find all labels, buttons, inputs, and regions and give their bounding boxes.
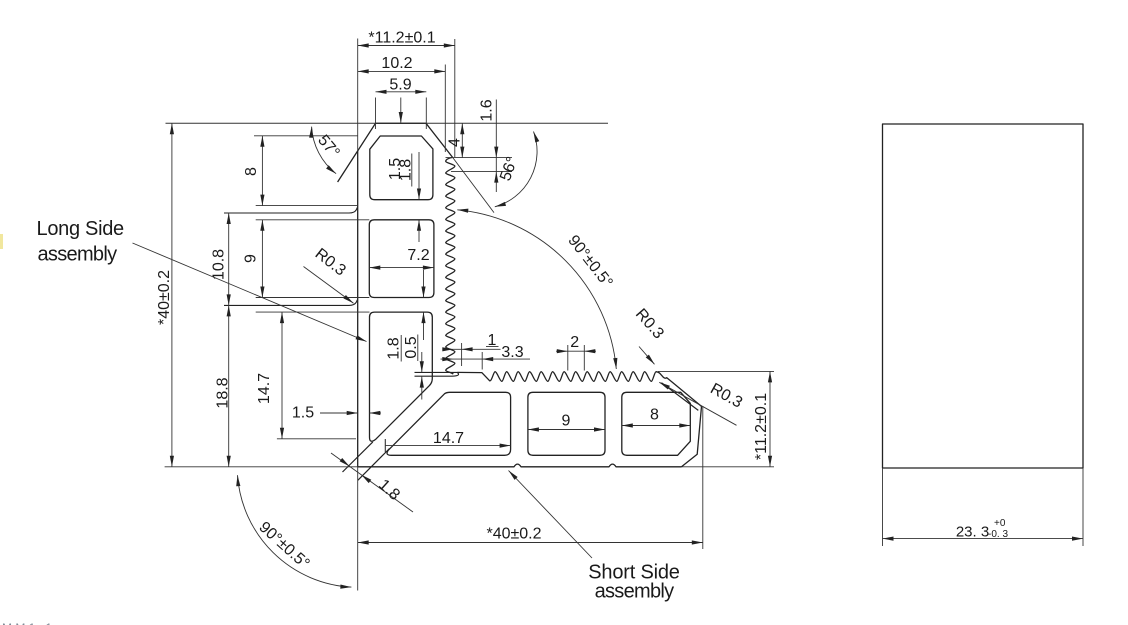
svg-text:M M 1 : 1: M M 1 : 1	[2, 621, 52, 625]
svg-text:18.8: 18.8	[214, 377, 231, 408]
svg-text:assembly: assembly	[595, 581, 675, 603]
svg-text:3.3: 3.3	[501, 344, 523, 361]
svg-text:0.5: 0.5	[403, 336, 420, 358]
svg-text:1.5: 1.5	[292, 405, 314, 422]
svg-text:4: 4	[446, 138, 463, 147]
svg-text:+0: +0	[994, 518, 1006, 529]
svg-text:-0. 3: -0. 3	[988, 529, 1008, 540]
svg-text:*40±0.2: *40±0.2	[156, 270, 173, 325]
svg-text:7.2: 7.2	[407, 247, 429, 264]
svg-text:8: 8	[243, 167, 260, 176]
svg-text:*11.2±0.1: *11.2±0.1	[753, 393, 770, 460]
svg-text:assembly: assembly	[38, 244, 118, 266]
svg-text:1.8: 1.8	[386, 337, 403, 359]
svg-text:14.7: 14.7	[256, 373, 273, 404]
svg-text:1.6: 1.6	[479, 99, 496, 121]
svg-text:2: 2	[570, 334, 579, 351]
svg-text:Long Side: Long Side	[37, 218, 125, 240]
svg-text:10.2: 10.2	[381, 55, 412, 72]
svg-text:8: 8	[650, 407, 659, 424]
svg-text:1.8: 1.8	[397, 159, 414, 181]
svg-text:5.9: 5.9	[389, 77, 411, 94]
svg-text:9: 9	[243, 254, 260, 263]
svg-text:*11.2±0.1: *11.2±0.1	[368, 30, 435, 47]
svg-text:*40±0.2: *40±0.2	[486, 526, 541, 543]
svg-text:10.8: 10.8	[211, 249, 228, 280]
svg-text:23. 3: 23. 3	[956, 524, 989, 541]
svg-text:14.7: 14.7	[433, 430, 464, 447]
svg-text:9: 9	[562, 413, 571, 430]
